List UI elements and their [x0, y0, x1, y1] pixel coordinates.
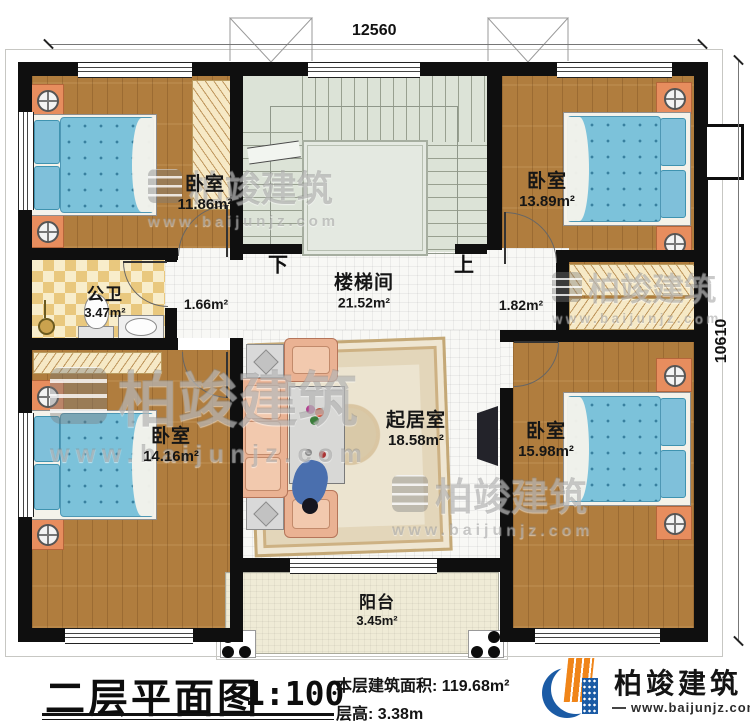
floor-drain-stem	[44, 300, 46, 318]
watermark-url: www.baijunjz.com	[552, 311, 722, 326]
watermark: 柏竣建筑 www.baijunjz.com	[50, 352, 368, 469]
nightstand	[656, 358, 692, 392]
wall-interior	[500, 330, 513, 342]
lamp-icon	[37, 524, 59, 546]
door-leaf	[514, 341, 558, 343]
pillow	[660, 450, 686, 498]
wall-interior	[487, 62, 502, 250]
window	[78, 62, 192, 78]
plan-scale: 1:100	[245, 674, 344, 713]
pillow	[660, 118, 686, 166]
room-label-bedroom-bl: 卧室 14.16m²	[143, 421, 199, 465]
column-dot	[239, 646, 251, 658]
room-label-bedroom-tl: 卧室 11.86m²	[177, 169, 232, 213]
title-underline-2	[42, 719, 334, 720]
floor-height-row: 层高: 3.38m	[336, 700, 423, 724]
lamp-icon	[37, 90, 59, 112]
floor-area-row: 本层建筑面积: 119.68m²	[336, 672, 509, 696]
column-dot	[488, 631, 500, 643]
floor-drain-icon	[38, 318, 55, 335]
floor-area-label: 本层建筑面积:	[336, 678, 437, 695]
stair-down-label: 下	[268, 249, 288, 278]
balcony-sliding-door	[290, 558, 437, 574]
room-label-stairwell: 楼梯间 21.52m²	[334, 268, 394, 311]
floor-plan-page: 12560 10610	[0, 0, 750, 728]
stair-up-label: 上	[454, 249, 474, 278]
watermark-text: 柏竣建筑	[588, 264, 716, 310]
dimension-top: 12560	[352, 22, 397, 40]
window	[18, 413, 34, 517]
watermark-logo-icon	[552, 272, 582, 302]
brand-logo-icon	[540, 656, 610, 722]
dimension-line-right	[738, 60, 739, 642]
nightstand	[30, 518, 64, 550]
pillow	[34, 120, 60, 164]
window	[18, 112, 34, 210]
pillow	[34, 464, 60, 510]
nightstand	[656, 506, 692, 540]
wall-interior	[18, 248, 178, 260]
dimension-right: 10610	[713, 313, 731, 369]
column-dot	[488, 646, 500, 658]
wall-interior	[18, 338, 178, 350]
hall-left-area: 1.66m²	[184, 296, 228, 312]
nightstand	[656, 82, 692, 114]
door-threshold-floor	[500, 338, 513, 388]
room-label-bedroom-br: 卧室 15.98m²	[518, 416, 574, 460]
lamp-icon	[664, 365, 686, 387]
watermark-url: www.baijunjz.com	[392, 522, 594, 540]
room-label-bathroom: 公卫 3.47m²	[84, 280, 125, 320]
tv-icon	[477, 406, 498, 466]
logo-building-blue	[582, 678, 598, 714]
room-label-bedroom-tr: 卧室 13.89m²	[519, 166, 575, 210]
rule-line	[612, 707, 626, 709]
pillow	[660, 398, 686, 446]
window	[557, 62, 672, 78]
nightstand	[30, 84, 64, 116]
pillow	[660, 170, 686, 218]
watermark: 柏竣建筑 www.baijunjz.com	[392, 466, 594, 540]
floor-height-value: 3.38m	[378, 706, 423, 723]
hall-right-area: 1.82m²	[499, 297, 543, 313]
room-label-living: 起居室 18.58m²	[386, 405, 446, 449]
dimension-line-top	[48, 44, 703, 45]
window	[308, 62, 420, 78]
lamp-icon	[664, 88, 686, 110]
watermark-text: 柏竣建筑	[435, 466, 587, 521]
column-dot	[222, 646, 234, 658]
brand-url: www.baijunjz.com	[631, 700, 750, 715]
wall-interior	[165, 308, 177, 350]
room-label-balcony: 阳台 3.45m²	[356, 588, 397, 628]
watermark: 柏竣建筑 www.baijunjz.com	[552, 264, 722, 326]
side-table	[246, 496, 284, 530]
watermark-url: www.baijunjz.com	[148, 213, 339, 230]
wall-interior	[165, 248, 177, 262]
column-dot	[471, 646, 483, 658]
sink-basin	[125, 318, 157, 336]
watermark-url: www.baijunjz.com	[50, 440, 368, 469]
pillow	[34, 166, 60, 210]
watermark-logo-icon	[50, 367, 107, 424]
floor-height-label: 层高:	[336, 706, 373, 723]
window	[65, 628, 193, 644]
watermark-logo-icon	[392, 475, 428, 511]
table-lamp-icon	[253, 501, 278, 526]
door-leaf	[504, 212, 506, 264]
nightstand	[30, 214, 64, 248]
brand-name: 柏竣建筑	[614, 662, 742, 702]
bed-quilt	[60, 117, 154, 213]
window	[535, 628, 660, 644]
lamp-icon	[664, 513, 686, 535]
wall-interior	[556, 250, 694, 262]
floor-area-value: 119.68m²	[442, 678, 510, 695]
bed-quilt	[567, 116, 661, 222]
door-leaf	[123, 261, 167, 263]
lamp-icon	[37, 221, 59, 243]
person-head	[302, 498, 318, 514]
brand-url-row: www.baijunjz.com	[612, 700, 750, 715]
title-underline	[42, 713, 334, 716]
